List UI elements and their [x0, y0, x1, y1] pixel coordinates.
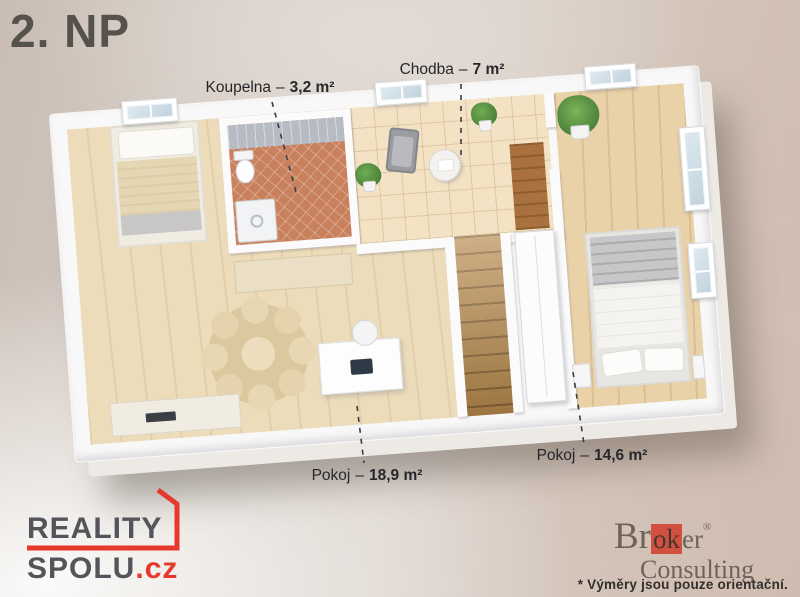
- broker-consulting-logo: Broker® Consulting: [614, 518, 794, 585]
- room-label-chodba: Chodba–7 m²: [400, 61, 505, 79]
- reality-spolu-logo: REALITY SPOLU.cz: [24, 488, 204, 590]
- label-dash: –: [276, 79, 285, 97]
- bathroom-wall-tiles: [227, 117, 344, 150]
- plan-walls: [50, 66, 724, 462]
- window: [687, 241, 717, 299]
- label-dash: –: [580, 447, 589, 465]
- room-koupelna: [219, 108, 361, 254]
- nightstand: [572, 363, 592, 388]
- plant-pot: [363, 181, 377, 193]
- pillow: [117, 126, 195, 160]
- room-name: Pokoj: [312, 467, 351, 485]
- nightstand: [692, 355, 706, 380]
- logo-text-cz: .cz: [135, 552, 178, 585]
- toilet-bowl: [235, 159, 256, 184]
- room-label-pokoj-small: Pokoj–14,6 m²: [537, 447, 648, 465]
- pillow: [644, 347, 685, 372]
- logo-text-reality: REALITY: [27, 512, 162, 546]
- keyboard: [146, 411, 177, 422]
- stair-railing: [509, 142, 549, 230]
- registered-mark: ®: [703, 521, 711, 533]
- room-label-koupelna: Koupelna–3,2 m²: [206, 79, 335, 97]
- window: [374, 79, 428, 107]
- armchair: [385, 127, 419, 174]
- plant-pot: [479, 120, 493, 132]
- window-glass: [693, 247, 712, 294]
- desk: [318, 337, 404, 395]
- pillow: [601, 348, 644, 378]
- label-dash: –: [459, 61, 468, 79]
- window-glass: [589, 68, 632, 85]
- logo-text-spolu: SPOLU.cz: [27, 552, 178, 586]
- window-glass: [684, 131, 706, 206]
- window-glass: [380, 84, 423, 101]
- room-area: 14,6 m²: [594, 447, 647, 465]
- room-label-pokoj-large: Pokoj–18,9 m²: [312, 467, 423, 485]
- label-dash: –: [355, 467, 364, 485]
- room-area: 18,9 m²: [369, 467, 422, 485]
- potted-plant: [354, 162, 382, 194]
- blanket: [117, 156, 201, 216]
- room-area: 7 m²: [473, 61, 505, 79]
- laptop: [350, 358, 373, 375]
- duvet: [593, 281, 683, 349]
- floor-plan-render: 2. NP: [0, 0, 800, 597]
- potted-plant: [470, 101, 502, 135]
- room-name: Chodba: [400, 61, 454, 79]
- room-area: 3,2 m²: [290, 79, 335, 97]
- single-bed: [109, 120, 208, 248]
- area-disclaimer: * Výměry jsou pouze orientační.: [578, 577, 788, 592]
- floor-plan: [50, 66, 724, 462]
- shower: [235, 198, 278, 243]
- window: [121, 97, 179, 125]
- folded-blanket: [590, 231, 679, 285]
- double-bed: [584, 226, 691, 389]
- window-glass: [126, 103, 173, 120]
- room-name: Koupelna: [206, 79, 272, 97]
- room-name: Pokoj: [537, 447, 576, 465]
- window: [584, 63, 638, 91]
- page-title: 2. NP: [10, 4, 130, 58]
